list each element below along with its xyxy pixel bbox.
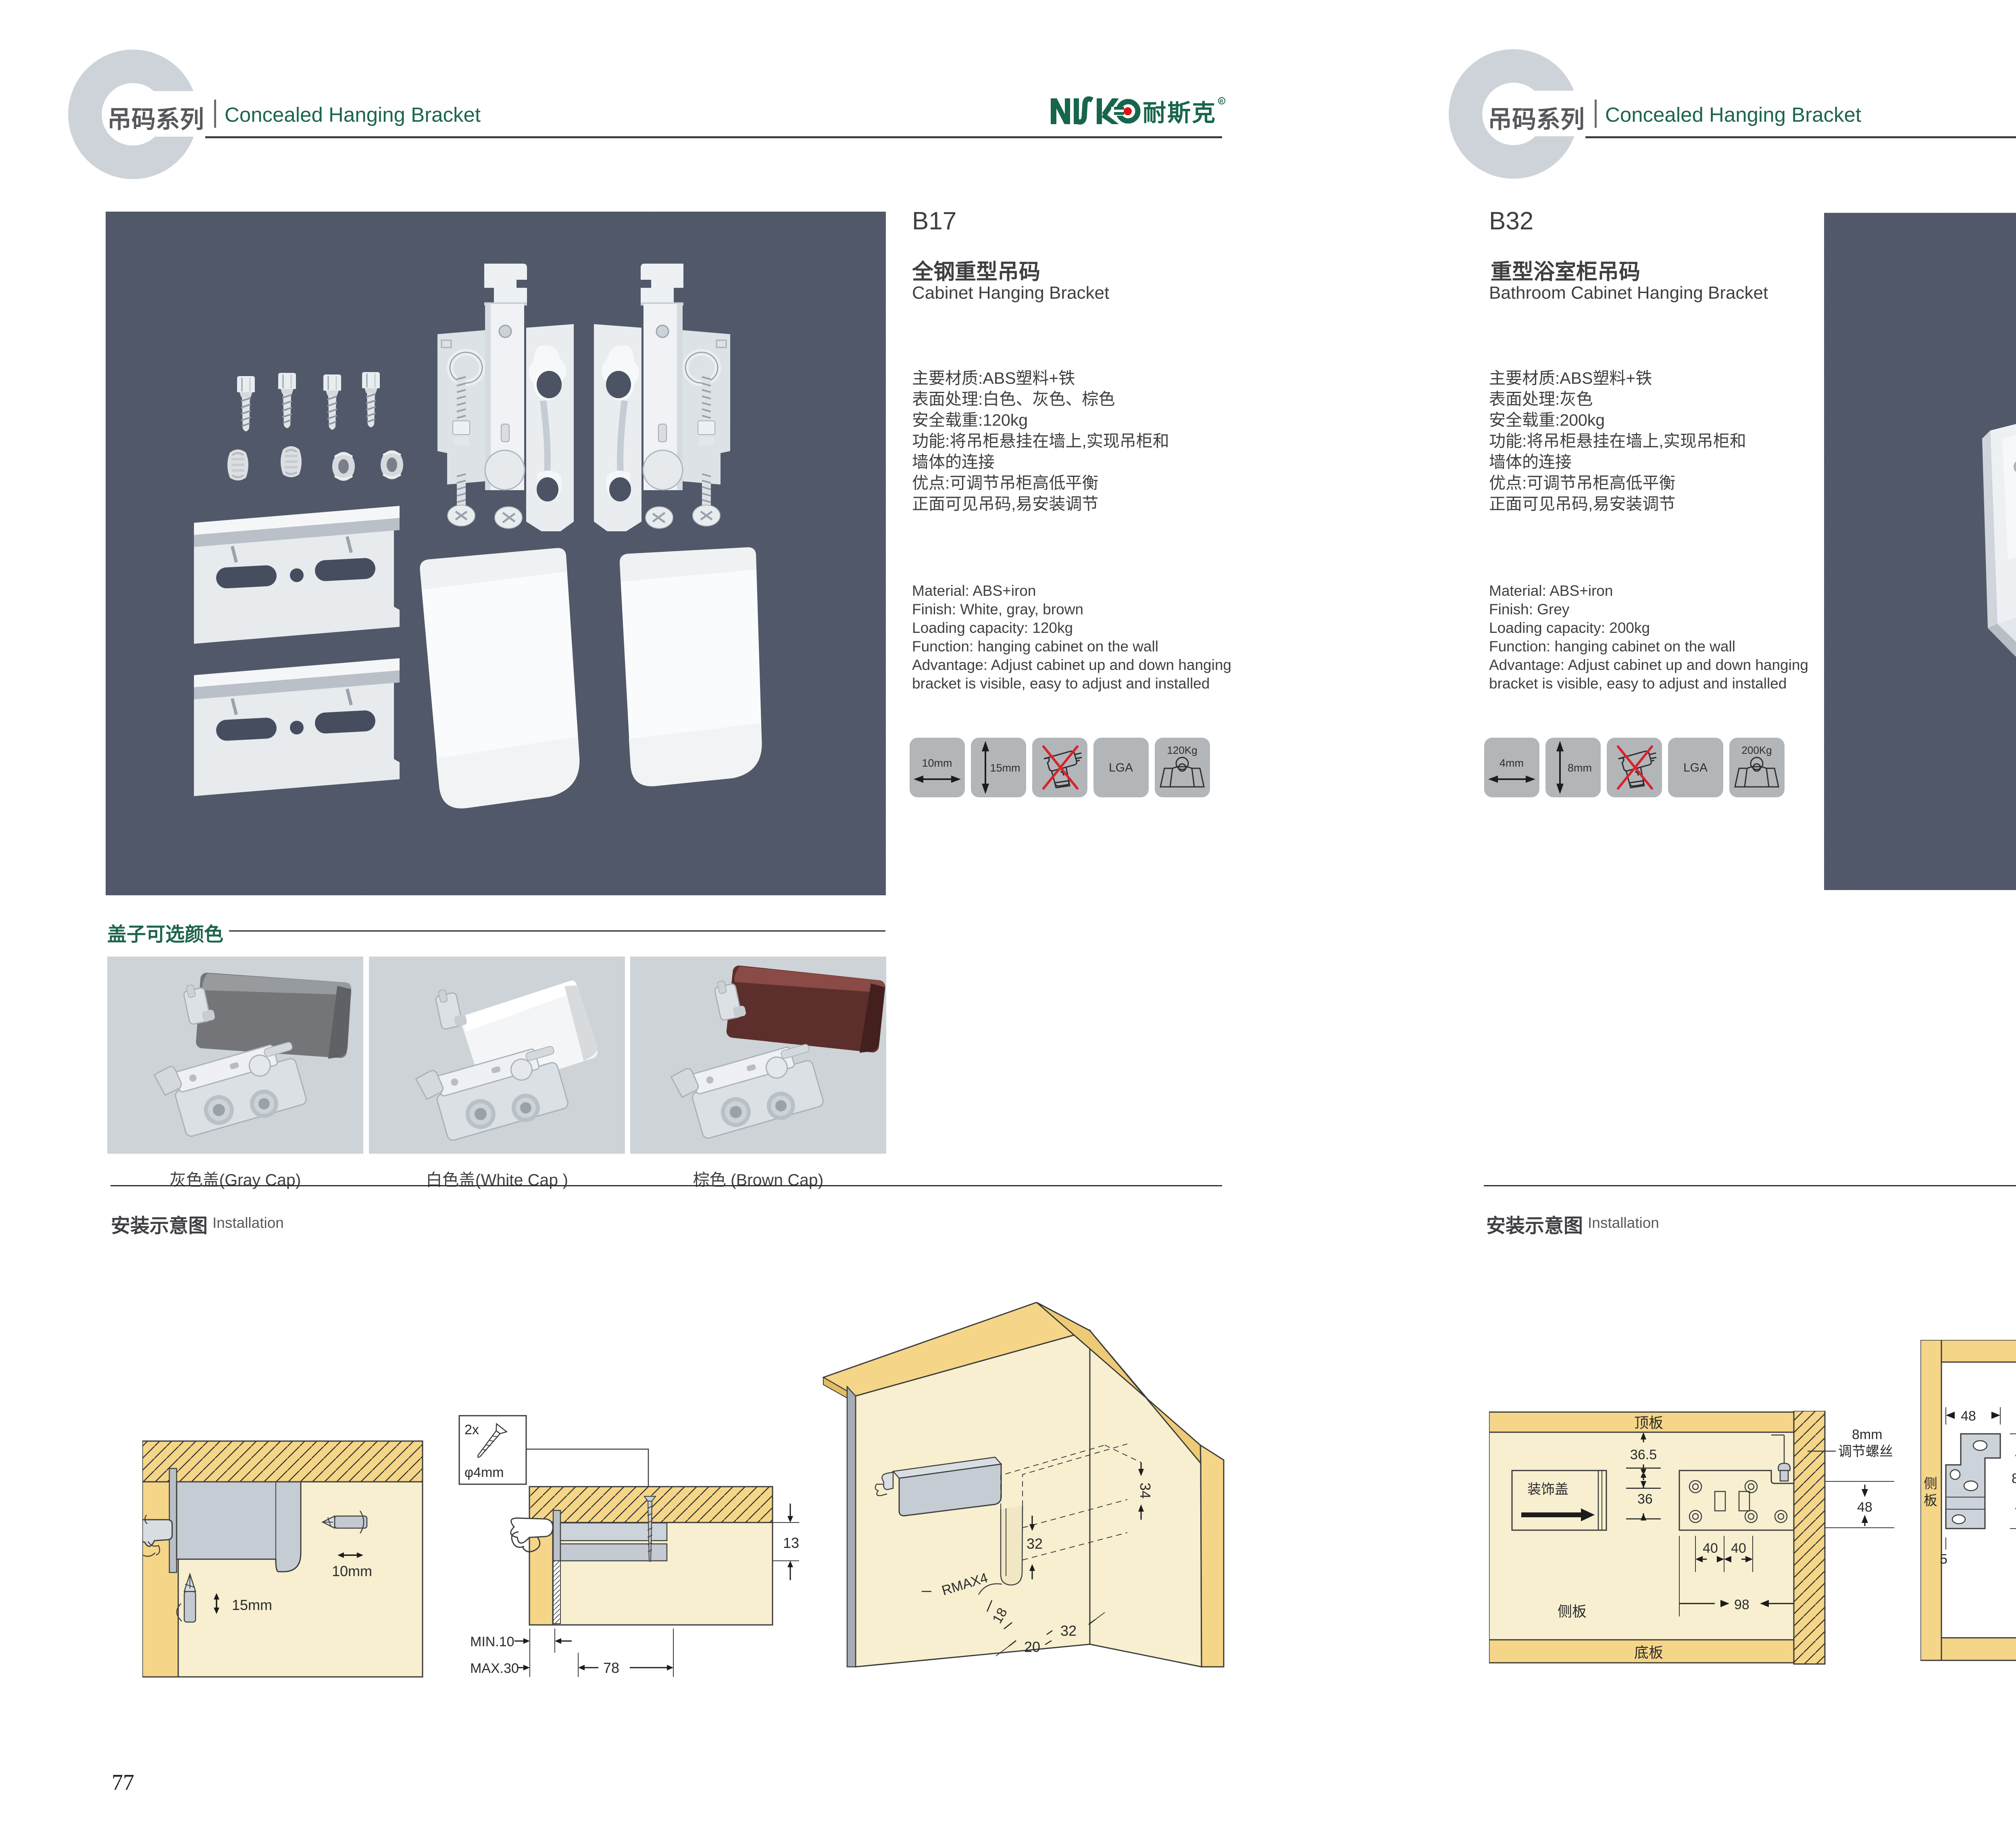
svg-text:200Kg: 200Kg — [1741, 744, 1772, 756]
svg-text:36.5: 36.5 — [1630, 1447, 1657, 1462]
svg-text:34: 34 — [1137, 1483, 1154, 1499]
svg-text:13: 13 — [783, 1535, 799, 1551]
svg-text:LGA: LGA — [1109, 761, 1133, 774]
svg-text:32: 32 — [1060, 1622, 1077, 1639]
svg-text:20: 20 — [1024, 1639, 1040, 1655]
svg-text:32: 32 — [1027, 1535, 1043, 1552]
svg-text:顶板: 顶板 — [1634, 1414, 1663, 1431]
svg-text:48: 48 — [1961, 1408, 1976, 1424]
svg-text:120Kg: 120Kg — [1167, 744, 1197, 756]
svg-text:MIN.10: MIN.10 — [470, 1634, 514, 1649]
svg-text:98: 98 — [1734, 1597, 1749, 1612]
svg-text:装饰盖: 装饰盖 — [1527, 1482, 1568, 1497]
svg-text:80: 80 — [2012, 1471, 2016, 1486]
svg-text:8mm: 8mm — [1852, 1427, 1883, 1442]
svg-text:耐斯克: 耐斯克 — [1143, 100, 1216, 126]
svg-text:φ4mm: φ4mm — [464, 1465, 504, 1480]
svg-text:10mm: 10mm — [922, 757, 952, 769]
svg-text:5: 5 — [1940, 1552, 1947, 1567]
svg-text:15mm: 15mm — [232, 1597, 272, 1613]
svg-text:15mm: 15mm — [990, 762, 1020, 774]
svg-text:8mm: 8mm — [1568, 762, 1592, 774]
svg-text:调节螺丝: 调节螺丝 — [1838, 1444, 1893, 1459]
svg-text:40: 40 — [1731, 1541, 1746, 1556]
svg-text:78: 78 — [603, 1660, 619, 1676]
svg-text:侧板: 侧板 — [1558, 1603, 1587, 1620]
svg-text:侧: 侧 — [1924, 1476, 1937, 1491]
svg-text:MAX.30: MAX.30 — [470, 1661, 519, 1676]
svg-text:10mm: 10mm — [332, 1563, 372, 1579]
svg-text:R: R — [1220, 98, 1223, 104]
svg-text:4mm: 4mm — [1500, 757, 1524, 769]
svg-text:40: 40 — [1703, 1541, 1718, 1556]
svg-text:48: 48 — [1857, 1500, 1872, 1515]
svg-text:LGA: LGA — [1683, 761, 1708, 774]
svg-text:底板: 底板 — [1634, 1644, 1663, 1661]
svg-text:36: 36 — [1637, 1491, 1653, 1507]
svg-text:2x: 2x — [464, 1422, 479, 1437]
svg-text:板: 板 — [1924, 1493, 1937, 1508]
